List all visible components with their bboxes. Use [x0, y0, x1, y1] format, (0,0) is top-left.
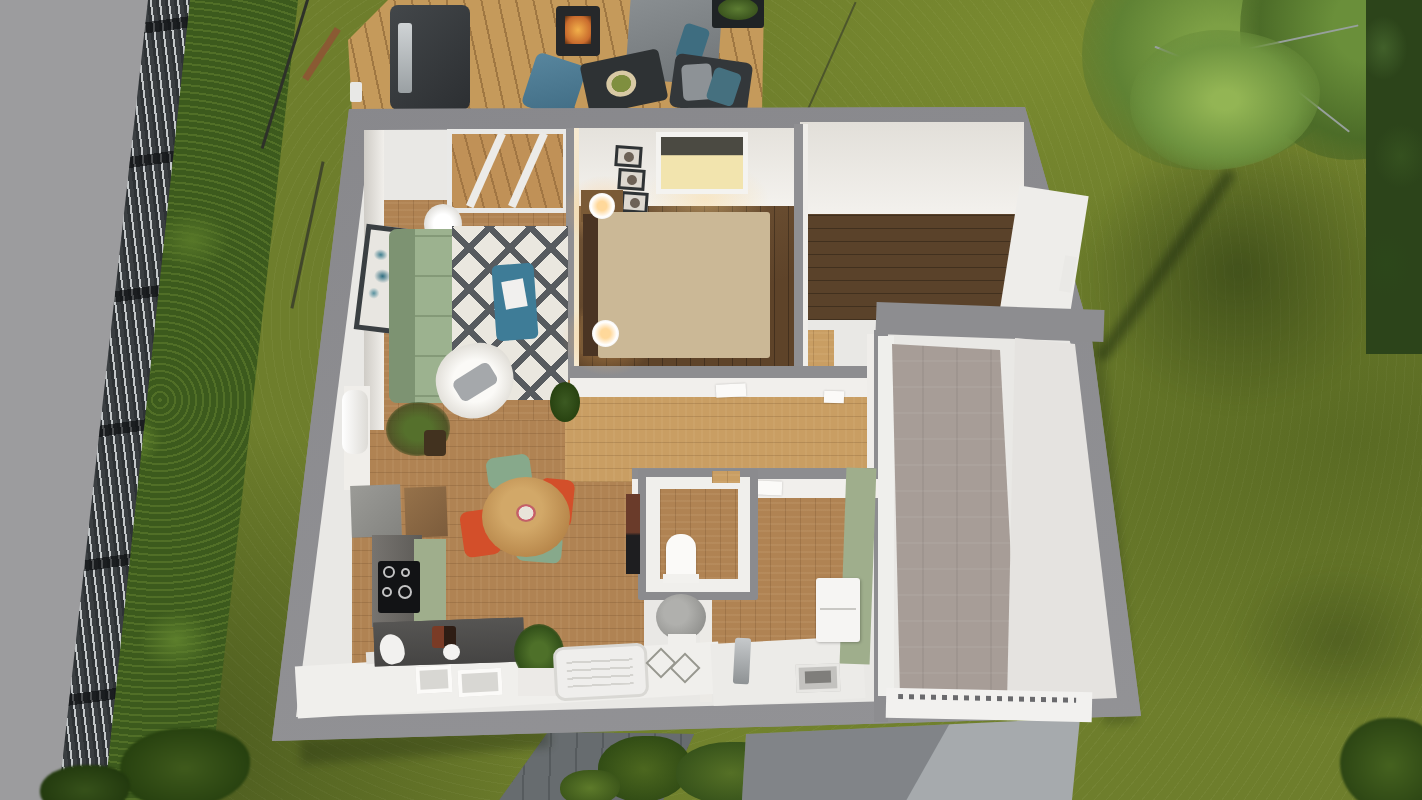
- open-door: [824, 391, 844, 404]
- open-door: [756, 481, 782, 496]
- burner: [383, 566, 395, 578]
- burner: [382, 587, 392, 597]
- barbecue-grill: [390, 5, 470, 110]
- cushioned-outdoor-chair: [669, 53, 754, 117]
- bedside-lamp: [589, 193, 615, 219]
- planter-box: [712, 0, 764, 28]
- shrub: [560, 770, 620, 800]
- burner: [398, 585, 412, 599]
- bedside-lamp: [592, 320, 619, 347]
- bedroom-window: [656, 132, 748, 194]
- floorplan-3d-viewport[interactable]: [0, 0, 1422, 800]
- hedge-right: [1366, 0, 1422, 354]
- garage-west-wall-face: [878, 336, 894, 696]
- dark-shelf: [626, 494, 640, 574]
- pedestal-sink: [656, 594, 706, 640]
- corner-plant: [550, 382, 580, 422]
- garage-door: [886, 688, 1093, 722]
- partition-wall: [570, 366, 888, 378]
- framed-picture: [620, 191, 648, 214]
- bedroom2-north-wall: [800, 122, 1024, 214]
- open-door: [716, 383, 747, 398]
- kitchen-window: [457, 668, 502, 697]
- partition-wall: [794, 124, 807, 378]
- potted-tree: [386, 402, 450, 462]
- tall-cabinet: [404, 486, 448, 537]
- deck-post: [350, 82, 362, 102]
- radiator: [342, 390, 368, 454]
- tree-shadow: [1088, 130, 1388, 410]
- vanity-cabinet: [816, 578, 860, 642]
- shower-drain: [796, 663, 841, 693]
- fire-stove: [556, 6, 600, 56]
- wc-door-opening: [712, 471, 740, 483]
- shrub: [120, 728, 250, 800]
- bathtub: [553, 643, 650, 702]
- double-bed: [598, 212, 770, 358]
- teal-coffee-table: [491, 263, 538, 342]
- garage-floor: [888, 342, 1020, 700]
- framed-picture: [614, 145, 642, 168]
- burner: [401, 568, 410, 577]
- toilet: [666, 534, 696, 580]
- framed-picture: [617, 168, 645, 191]
- window-mullion: [508, 132, 548, 208]
- round-dining-table: [482, 477, 570, 557]
- cooktop: [378, 561, 420, 613]
- kettle: [443, 644, 460, 660]
- sofa-back: [389, 229, 415, 403]
- salad-plate: [604, 68, 639, 100]
- plant-pot: [424, 430, 446, 456]
- window-mullion: [466, 132, 506, 208]
- glazed-porch-door: [447, 129, 568, 213]
- fridge: [350, 484, 402, 538]
- bath-faucet: [733, 638, 751, 685]
- kitchen-window: [415, 665, 452, 694]
